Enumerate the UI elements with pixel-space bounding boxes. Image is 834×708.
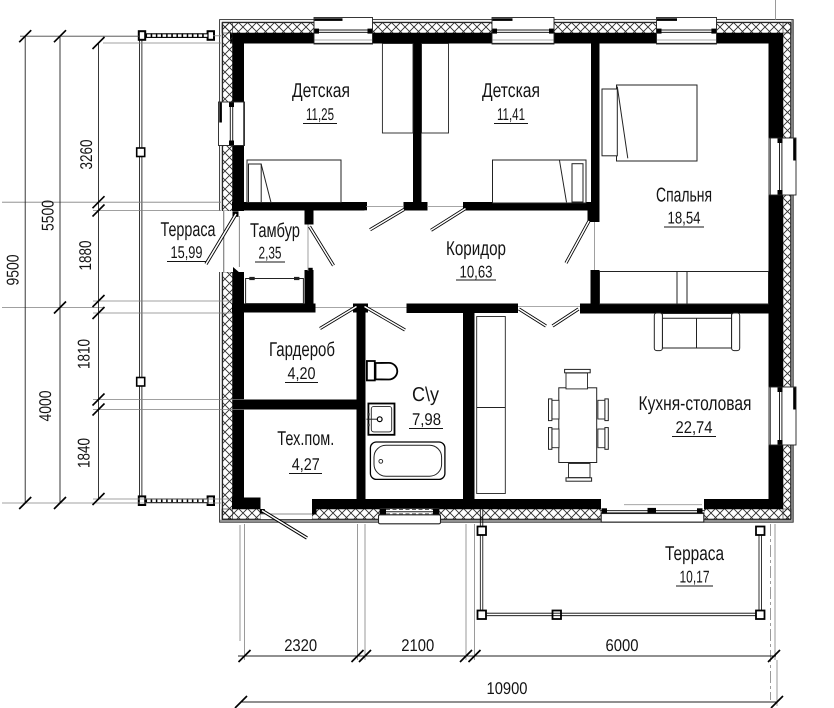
svg-text:2,35: 2,35 (259, 244, 282, 263)
svg-text:3260: 3260 (77, 140, 96, 170)
svg-text:Гардероб: Гардероб (269, 339, 335, 361)
svg-text:5500: 5500 (39, 200, 58, 231)
svg-text:Детская: Детская (482, 80, 540, 102)
svg-text:11,25: 11,25 (306, 105, 334, 124)
svg-text:10,17: 10,17 (680, 568, 710, 587)
svg-text:10,63: 10,63 (460, 263, 493, 282)
svg-text:Спальня: Спальня (656, 185, 712, 207)
svg-text:2100: 2100 (401, 636, 434, 655)
svg-text:4,27: 4,27 (292, 455, 320, 474)
svg-text:Терраса: Терраса (665, 543, 725, 565)
svg-text:4,20: 4,20 (288, 364, 316, 383)
svg-text:4000: 4000 (36, 391, 55, 422)
svg-text:18,54: 18,54 (668, 209, 701, 228)
svg-text:Терраса: Терраса (161, 219, 217, 241)
svg-text:Кухня-столовая: Кухня-столовая (639, 393, 752, 415)
svg-text:7,98: 7,98 (412, 410, 441, 429)
svg-text:Тех.пом.: Тех.пом. (277, 428, 334, 450)
svg-text:15,99: 15,99 (171, 243, 203, 262)
svg-text:2320: 2320 (284, 636, 317, 655)
svg-text:11,41: 11,41 (497, 105, 525, 124)
svg-text:Коридор: Коридор (446, 238, 506, 260)
svg-text:Детская: Детская (292, 80, 350, 102)
svg-text:С\у: С\у (412, 384, 439, 406)
svg-text:1840: 1840 (75, 438, 94, 468)
svg-text:22,74: 22,74 (676, 418, 713, 437)
svg-text:9500: 9500 (4, 255, 23, 286)
svg-text:1880: 1880 (76, 241, 95, 271)
svg-text:10900: 10900 (487, 679, 528, 698)
svg-text:1810: 1810 (75, 339, 94, 369)
svg-text:6000: 6000 (606, 636, 639, 655)
svg-text:Тамбур: Тамбур (250, 220, 300, 242)
